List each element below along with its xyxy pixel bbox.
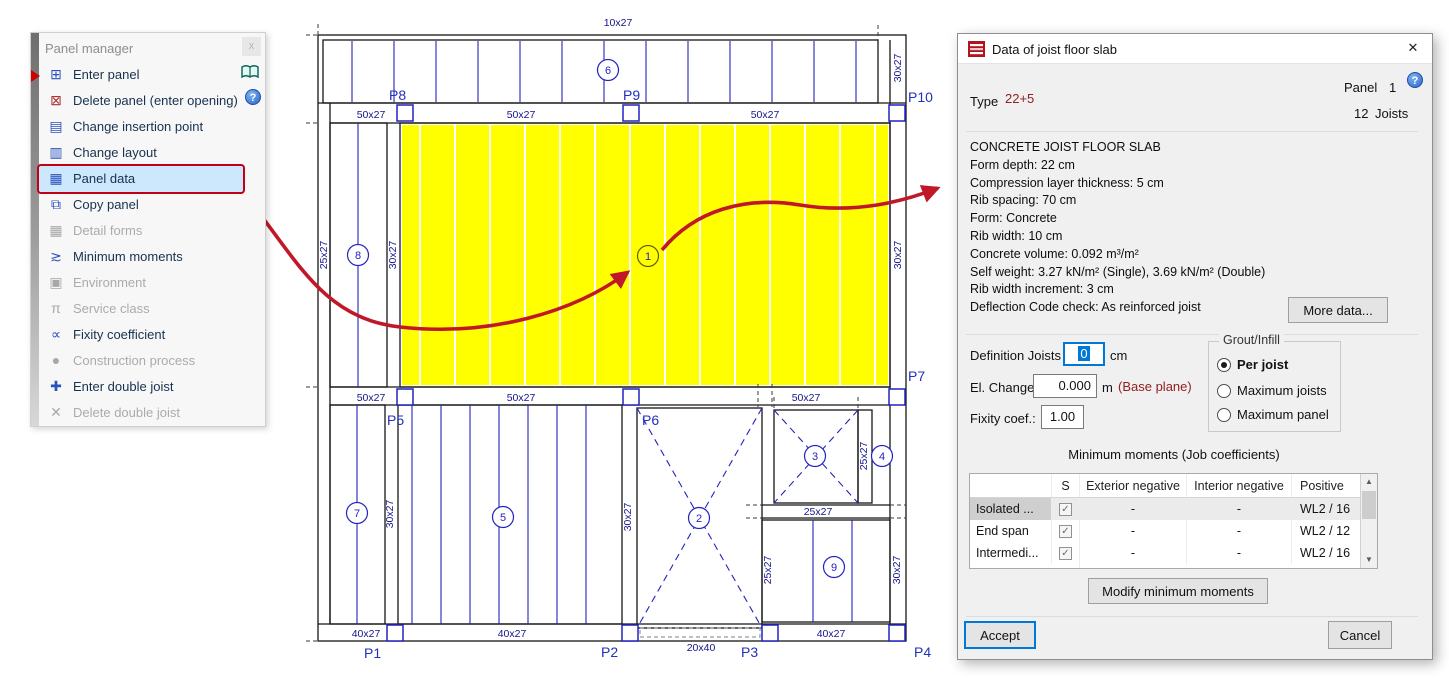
menu-item-panel-data[interactable]: ▦ Panel data	[39, 165, 265, 191]
separator	[966, 616, 1418, 617]
dialog-close-icon[interactable]: ✕	[1402, 40, 1424, 59]
panel-manager-window: Panel manager x ⊞ Enter panel ⊠ Delete p…	[30, 32, 266, 427]
dim-label: 30x27	[384, 500, 396, 529]
panel-number-5: 5	[500, 512, 506, 524]
menu-item-fixity-coefficient[interactable]: ∝ Fixity coefficient	[39, 321, 265, 347]
panel-label: Panel	[1344, 80, 1377, 95]
scroll-up-icon[interactable]: ▲	[1361, 474, 1377, 490]
grout-infill-title: Grout/Infill	[1219, 333, 1284, 347]
minimum-moments-icon: ≳	[47, 248, 65, 265]
panel-number-1: 1	[645, 251, 651, 263]
menu-item-detail-forms: ▦ Detail forms	[39, 217, 265, 243]
s-checkbox[interactable]: ✓	[1059, 525, 1072, 538]
menu-gradient-strip	[31, 33, 39, 426]
table-header-row: S Exterior negative Interior negative Po…	[970, 474, 1362, 498]
detail-forms-icon: ▦	[47, 222, 65, 239]
minimum-moments-title: Minimum moments (Job coefficients)	[958, 447, 1390, 462]
fixity-coefficient-icon: ∝	[47, 326, 65, 343]
enter-double-joist-icon: ✚	[47, 378, 65, 395]
radio-button-icon	[1217, 358, 1231, 372]
panel-number-7: 7	[354, 508, 360, 520]
dim-label: 50x27	[792, 392, 821, 404]
separator	[966, 131, 1418, 132]
dim-label: 50x27	[751, 109, 780, 121]
col-header-s: S	[1052, 474, 1080, 497]
slab-info-block: CONCRETE JOIST FLOOR SLAB Form depth: 22…	[970, 139, 1410, 317]
scroll-thumb[interactable]	[1362, 491, 1376, 519]
menu-item-enter-double-joist[interactable]: ✚ Enter double joist	[39, 373, 265, 399]
modify-minimum-moments-button[interactable]: Modify minimum moments	[1088, 578, 1268, 604]
column-label-P3: P3	[741, 644, 758, 660]
dim-label: 25x27	[858, 442, 870, 471]
definition-joists-label: Definition Joists	[970, 348, 1061, 363]
separator	[966, 334, 1418, 335]
info-line: Form: Concrete	[970, 210, 1410, 228]
menu-item-delete-panel[interactable]: ⊠ Delete panel (enter opening)	[39, 87, 265, 113]
column-label-P1: P1	[364, 645, 381, 661]
construction-process-icon: ●	[47, 352, 65, 368]
column-label-P9: P9	[623, 87, 640, 103]
col-header-name	[970, 474, 1052, 497]
row-name: Intermedi...	[970, 542, 1052, 564]
radio-maximum-panel[interactable]: Maximum panel	[1217, 407, 1329, 422]
radio-label: Per joist	[1237, 357, 1288, 372]
dim-label: 50x27	[507, 392, 536, 404]
table-row-isolated[interactable]: Isolated ... ✓ - - WL2 / 16	[970, 498, 1362, 520]
menu-item-label: Environment	[73, 275, 146, 290]
panel-number-3: 3	[812, 451, 818, 463]
cancel-button[interactable]: Cancel	[1328, 621, 1392, 649]
dim-label: 25x27	[762, 556, 774, 585]
definition-joists-input[interactable]: 0	[1063, 342, 1105, 366]
table-row-partial	[970, 564, 1362, 568]
menu-close-button[interactable]: x	[242, 37, 261, 56]
menu-item-label: Fixity coefficient	[73, 327, 165, 342]
radio-button-icon	[1217, 384, 1231, 398]
info-line: Compression layer thickness: 5 cm	[970, 175, 1410, 193]
menu-item-label: Service class	[73, 301, 150, 316]
panel-number-6: 6	[605, 65, 611, 77]
s-checkbox[interactable]: ✓	[1059, 547, 1072, 560]
panel-number-2: 2	[696, 513, 702, 525]
positive-value: WL2 / 16	[1292, 498, 1362, 520]
menu-item-label: Detail forms	[73, 223, 142, 238]
radio-maximum-joists[interactable]: Maximum joists	[1217, 383, 1327, 398]
ext-negative-value: -	[1080, 542, 1187, 564]
dim-label: 40x27	[817, 628, 846, 640]
int-negative-value: -	[1187, 542, 1292, 564]
menu-item-change-layout[interactable]: ▥ Change layout	[39, 139, 265, 165]
int-negative-value: -	[1187, 520, 1292, 542]
menu-help-icon[interactable]: ?	[245, 89, 261, 105]
column-label-P7: P7	[908, 368, 925, 384]
el-change-input[interactable]: 0.000	[1033, 374, 1097, 398]
col-header-exterior-negative: Exterior negative	[1080, 474, 1187, 497]
menu-item-label: Copy panel	[73, 197, 139, 212]
menu-item-minimum-moments[interactable]: ≳ Minimum moments	[39, 243, 265, 269]
dim-label: 30x27	[892, 54, 904, 83]
panel-number: 1	[1389, 80, 1396, 95]
el-change-label: El. Change	[970, 380, 1034, 395]
dim-label: 40x27	[352, 628, 381, 640]
dim-label: 30x27	[622, 503, 634, 532]
radio-label: Maximum panel	[1237, 407, 1329, 422]
menu-item-label: Enter panel	[73, 67, 140, 82]
joists-count: 12	[1354, 106, 1368, 121]
row-name: End span	[970, 520, 1052, 542]
panel-number-9: 9	[831, 562, 837, 574]
menu-item-label: Change layout	[73, 145, 157, 160]
col-header-positive: Positive	[1292, 474, 1362, 497]
table-row-intermediate[interactable]: Intermedi... ✓ - - WL2 / 16	[970, 542, 1362, 564]
scroll-down-icon[interactable]: ▼	[1361, 552, 1377, 568]
fixity-coef-input[interactable]: 1.00	[1041, 405, 1084, 429]
type-label: Type	[970, 94, 998, 109]
menu-item-environment: ▣ Environment	[39, 269, 265, 295]
dialog-slab-icon	[968, 41, 985, 62]
menu-item-service-class: π Service class	[39, 295, 265, 321]
joists-label: Joists	[1375, 106, 1408, 121]
accept-button[interactable]: Accept	[964, 621, 1036, 649]
enter-panel-icon: ⊞	[47, 66, 65, 83]
service-class-icon: π	[47, 300, 65, 316]
column-label-P8: P8	[389, 87, 406, 103]
definition-joists-value: 0	[1078, 346, 1089, 361]
copy-panel-icon: ⧉	[47, 196, 65, 213]
radio-label: Maximum joists	[1237, 383, 1327, 398]
panel-number-8: 8	[355, 250, 361, 262]
menu-item-enter-panel[interactable]: ⊞ Enter panel	[39, 61, 265, 87]
more-data-button[interactable]: More data...	[1288, 297, 1388, 323]
grout-infill-groupbox: Grout/Infill Per joist Maximum joists Ma…	[1208, 341, 1341, 432]
int-negative-value: -	[1187, 498, 1292, 520]
positive-value: WL2 / 12	[1292, 520, 1362, 542]
info-line: Concrete volume: 0.092 m³/m²	[970, 246, 1410, 264]
fixity-coef-label: Fixity coef.:	[970, 411, 1036, 426]
column-label-P5: P5	[387, 412, 404, 428]
menu-item-label: Change insertion point	[73, 119, 203, 134]
dim-label: 30x27	[891, 556, 903, 585]
dim-label: 30x27	[387, 241, 399, 270]
menu-item-label: Delete double joist	[73, 405, 180, 420]
radio-per-joist[interactable]: Per joist	[1217, 357, 1288, 372]
guide-book-icon[interactable]	[240, 63, 260, 86]
ext-negative-value: -	[1080, 498, 1187, 520]
col-header-interior-negative: Interior negative	[1187, 474, 1292, 497]
column-label-P4: P4	[914, 644, 931, 660]
menu-item-copy-panel[interactable]: ⧉ Copy panel	[39, 191, 265, 217]
menu-item-label: Delete panel (enter opening)	[73, 93, 238, 108]
dim-label: 50x27	[357, 109, 386, 121]
stair-beam-dashed-rect	[640, 628, 760, 637]
delete-panel-icon: ⊠	[47, 92, 65, 109]
column-label-P10: P10	[908, 89, 933, 105]
column-label-P6: P6	[642, 412, 659, 428]
info-line: Rib width: 10 cm	[970, 228, 1410, 246]
menu-item-delete-double-joist: ✕ Delete double joist	[39, 399, 265, 425]
table-scrollbar[interactable]: ▲ ▼	[1360, 474, 1377, 568]
type-value: 22+5	[1005, 91, 1034, 106]
dim-label: 30x27	[892, 241, 904, 270]
menu-item-label: Construction process	[73, 353, 195, 368]
dim-label: 50x27	[357, 392, 386, 404]
change-insertion-point-icon: ▤	[47, 118, 65, 135]
menu-item-change-insertion-point[interactable]: ▤ Change insertion point	[39, 113, 265, 139]
base-plane-note: (Base plane)	[1118, 379, 1192, 394]
menu-item-label: Enter double joist	[73, 379, 173, 394]
panel-manager-title: Panel manager	[45, 41, 133, 56]
menu-item-label: Panel data	[73, 171, 135, 186]
info-line: Self weight: 3.27 kN/m² (Single), 3.69 k…	[970, 264, 1410, 282]
column-label-P2: P2	[601, 644, 618, 660]
minimum-moments-table[interactable]: S Exterior negative Interior negative Po…	[969, 473, 1378, 569]
row-name: Isolated ...	[970, 498, 1052, 520]
joist-floor-slab-dialog: Data of joist floor slab ✕ ? Type 22+5 P…	[957, 33, 1433, 660]
menu-item-label: Minimum moments	[73, 249, 183, 264]
dialog-help-icon[interactable]: ?	[1407, 72, 1423, 88]
positive-value: WL2 / 16	[1292, 542, 1362, 564]
s-checkbox[interactable]: ✓	[1059, 503, 1072, 516]
dim-label: 50x27	[507, 109, 536, 121]
change-layout-icon: ▥	[47, 144, 65, 161]
dim-label: 25x27	[804, 506, 833, 518]
dim-label: 20x40	[687, 642, 716, 654]
dim-label: 25x27	[318, 241, 330, 270]
radio-button-icon	[1217, 408, 1231, 422]
dim-label: 10x27	[604, 17, 633, 29]
info-line: CONCRETE JOIST FLOOR SLAB	[970, 139, 1410, 157]
dialog-title: Data of joist floor slab	[992, 42, 1117, 57]
environment-icon: ▣	[47, 274, 65, 291]
el-change-value: 0.000	[1058, 378, 1091, 393]
panel-data-icon: ▦	[47, 170, 65, 187]
info-line: Form depth: 22 cm	[970, 157, 1410, 175]
definition-joists-unit: cm	[1110, 348, 1127, 363]
delete-double-joist-icon: ✕	[47, 404, 65, 421]
info-line: Rib spacing: 70 cm	[970, 192, 1410, 210]
table-row-end-span[interactable]: End span ✓ - - WL2 / 12	[970, 520, 1362, 542]
el-change-unit: m	[1102, 380, 1113, 395]
fixity-coef-value: 1.00	[1050, 409, 1075, 424]
menu-item-construction-process: ● Construction process	[39, 347, 265, 373]
dim-label: 40x27	[498, 628, 527, 640]
panel-number-4: 4	[879, 451, 885, 463]
ext-negative-value: -	[1080, 520, 1187, 542]
